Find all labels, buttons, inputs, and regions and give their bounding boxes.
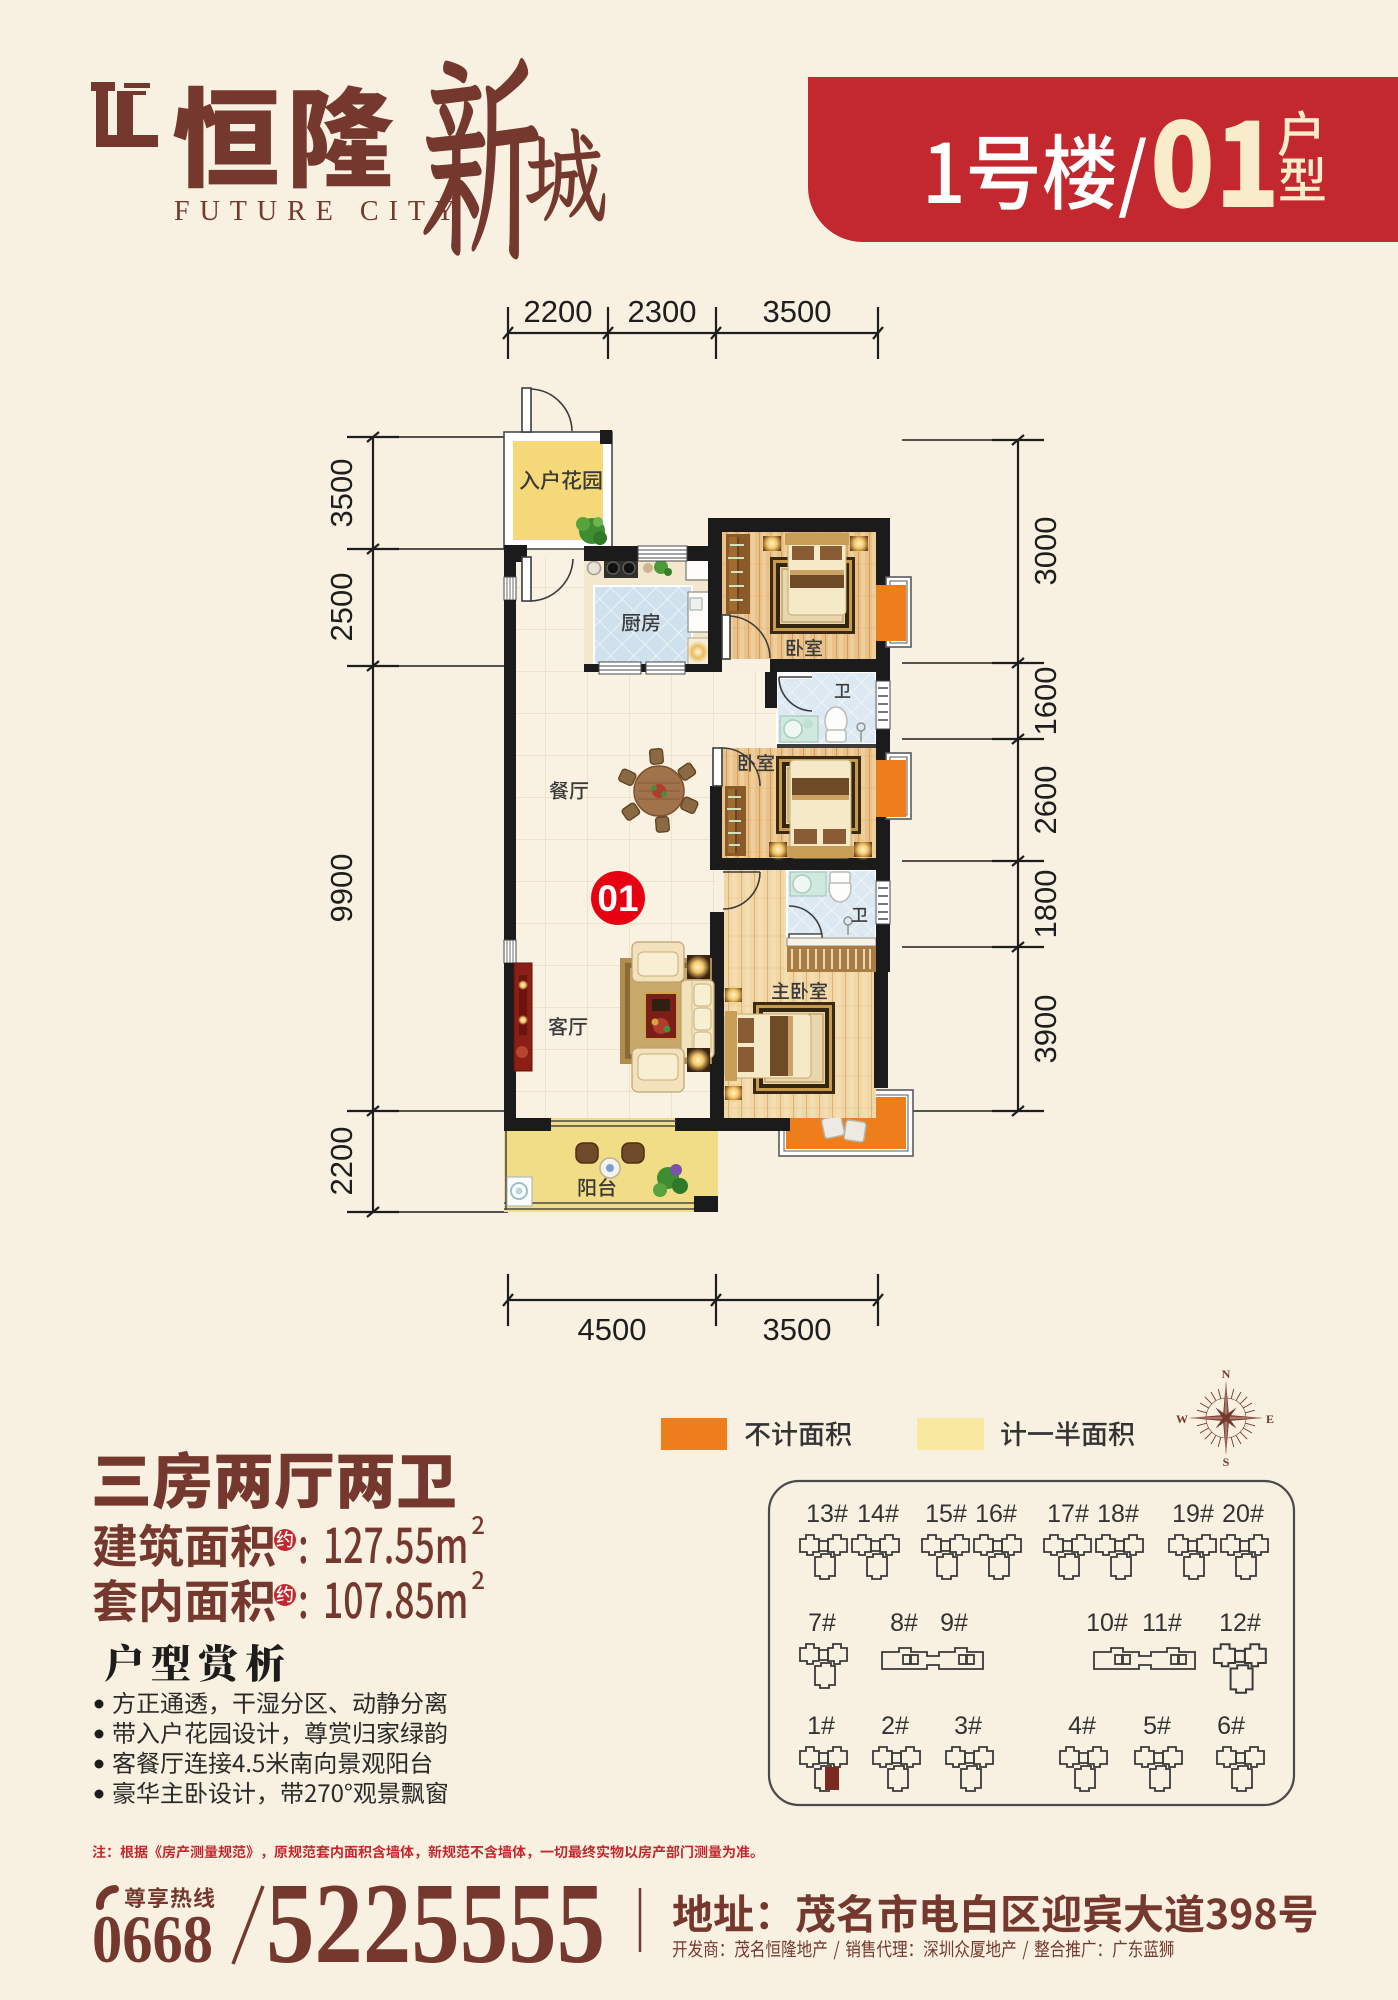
svg-text:18#: 18#	[1097, 1500, 1139, 1528]
svg-text:E: E	[1266, 1412, 1274, 1426]
svg-text:2200: 2200	[324, 1127, 359, 1196]
svg-text:14#: 14#	[857, 1500, 899, 1528]
svg-text:9#: 9#	[940, 1609, 968, 1637]
svg-text:8#: 8#	[890, 1609, 918, 1637]
svg-text:11#: 11#	[1142, 1609, 1182, 1637]
svg-text:1600: 1600	[1028, 667, 1063, 736]
svg-text:FUTURE CITY: FUTURE CITY	[174, 196, 465, 227]
svg-text:4#: 4#	[1068, 1712, 1096, 1740]
svg-text:13#: 13#	[806, 1500, 848, 1528]
svg-text:1#: 1#	[807, 1712, 835, 1740]
svg-text:17#: 17#	[1047, 1500, 1089, 1528]
svg-text:20#: 20#	[1222, 1500, 1264, 1528]
svg-text:N: N	[1222, 1367, 1231, 1381]
svg-text:S: S	[1223, 1455, 1230, 1469]
svg-text:19#: 19#	[1172, 1500, 1214, 1528]
svg-text:3500: 3500	[763, 294, 832, 329]
svg-text:W: W	[1176, 1412, 1188, 1426]
svg-text:3900: 3900	[1028, 995, 1063, 1064]
svg-text:3#: 3#	[954, 1712, 982, 1740]
svg-text:15#: 15#	[925, 1500, 967, 1528]
svg-text:01: 01	[597, 878, 638, 919]
svg-text:0668: 0668	[92, 1901, 213, 1977]
svg-text:4500: 4500	[578, 1312, 647, 1347]
svg-text:9900: 9900	[324, 854, 359, 923]
svg-text:2600: 2600	[1028, 766, 1063, 835]
svg-text:6#: 6#	[1217, 1712, 1245, 1740]
svg-text:2500: 2500	[324, 573, 359, 642]
svg-text:3500: 3500	[324, 459, 359, 528]
svg-text:12#: 12#	[1219, 1609, 1261, 1637]
svg-text:2300: 2300	[628, 294, 697, 329]
svg-text:16#: 16#	[975, 1500, 1017, 1528]
svg-text:10#: 10#	[1086, 1609, 1128, 1637]
svg-text:5225555: 5225555	[266, 1860, 605, 1988]
svg-text:7#: 7#	[808, 1609, 836, 1637]
svg-text:1800: 1800	[1028, 870, 1063, 939]
svg-text:2200: 2200	[524, 294, 593, 329]
svg-text:5#: 5#	[1143, 1712, 1171, 1740]
svg-text:3500: 3500	[763, 1312, 832, 1347]
svg-text:3000: 3000	[1028, 517, 1063, 586]
svg-text:2#: 2#	[881, 1712, 909, 1740]
